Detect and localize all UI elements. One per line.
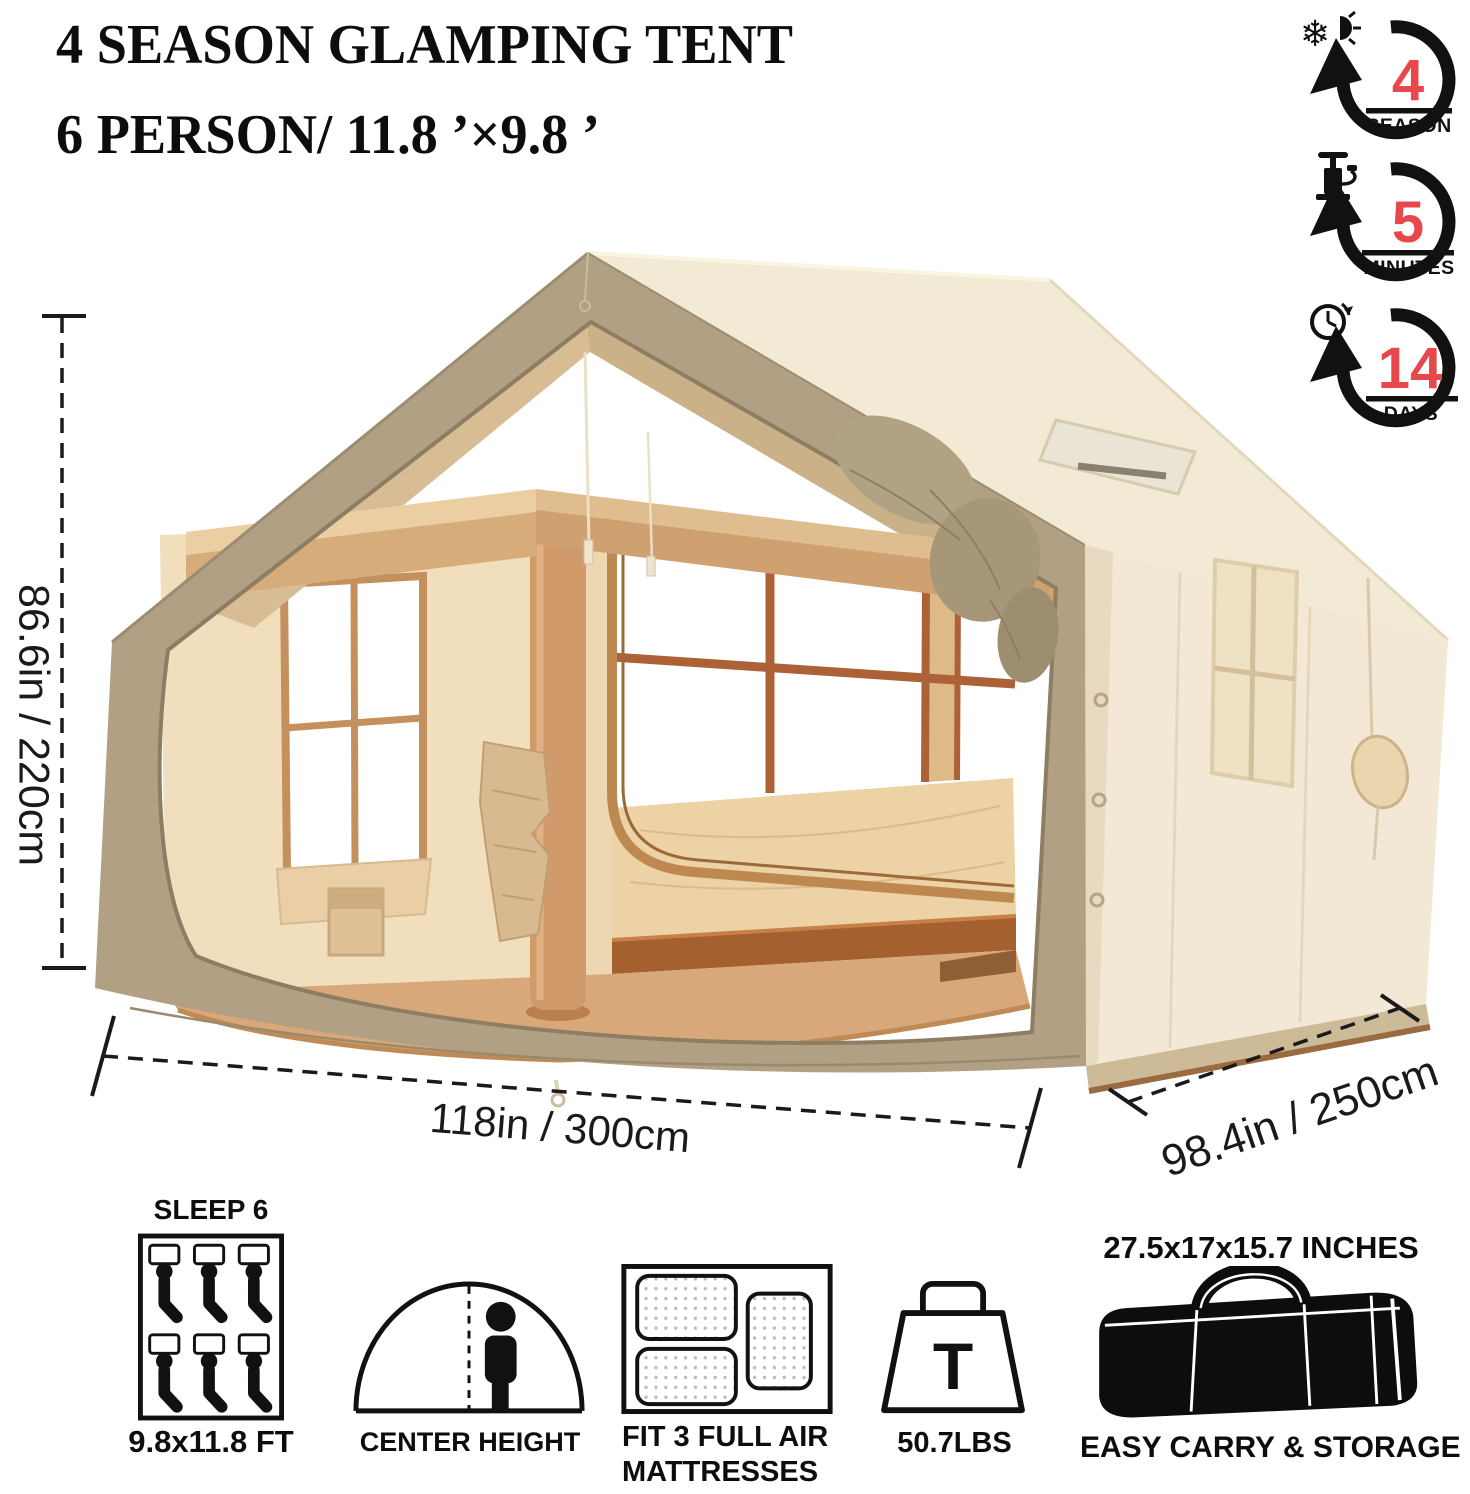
interior-left-window xyxy=(277,576,431,924)
center-height-icon xyxy=(350,1262,588,1418)
carry-bag-icon xyxy=(1080,1266,1442,1424)
center-height-caption: CENTER HEIGHT xyxy=(345,1427,595,1458)
storage-pocket xyxy=(329,889,383,955)
weight-caption: 50.7LBS xyxy=(877,1427,1032,1460)
sleep-6-title: SLEEP 6 xyxy=(126,1194,296,1226)
weight-glyph: T xyxy=(933,1329,973,1403)
carry-bag-title: 27.5x17x15.7 INCHES xyxy=(1085,1230,1437,1266)
carry-bag-caption: EASY CARRY & STORAGE xyxy=(1080,1431,1440,1465)
air-mattress-caption-line2: MATTRESSES xyxy=(622,1456,818,1489)
air-mattress-icon xyxy=(621,1264,833,1414)
sleep-6-icon xyxy=(138,1232,284,1422)
weight-icon: T xyxy=(878,1280,1028,1416)
air-mattress-caption-line1: FIT 3 FULL AIR xyxy=(622,1421,828,1454)
sleep-6-caption: 9.8x11.8 FT xyxy=(108,1424,314,1460)
product-infographic: 4 SEASON GLAMPING TENT 6 PERSON/ 11.8 ’×… xyxy=(0,0,1470,1494)
height-dimension-label: 86.6in / 220cm xyxy=(8,482,58,968)
side-window xyxy=(1212,560,1297,786)
